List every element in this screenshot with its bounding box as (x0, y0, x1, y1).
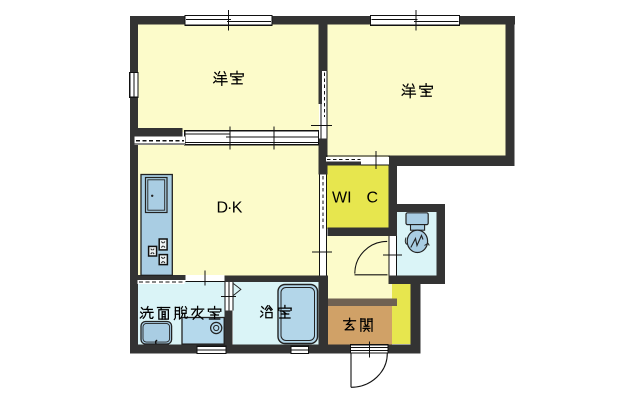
svg-text:C: C (367, 189, 379, 206)
svg-text:K: K (232, 200, 243, 217)
svg-text:WI: WI (332, 189, 352, 206)
